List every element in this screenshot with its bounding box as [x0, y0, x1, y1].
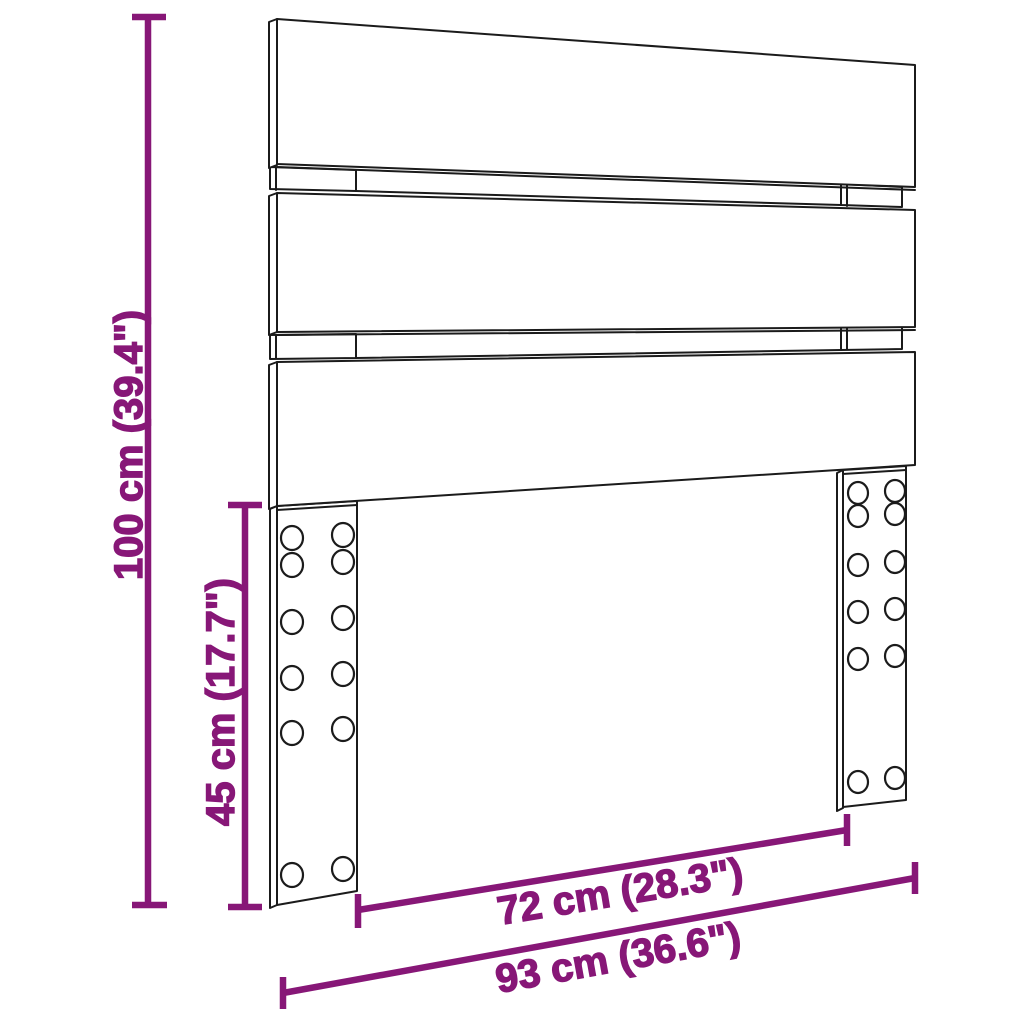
plank-bottom-front-face: [277, 352, 915, 506]
left-leg: [270, 501, 357, 908]
dimension-label-total-height: 100 cm (39.4"): [107, 310, 151, 580]
dimension-label-leg-height: 45 cm (17.7"): [199, 578, 243, 826]
screw-hole: [848, 505, 868, 527]
screw-hole: [281, 553, 303, 577]
plank-middle-side-face: [269, 193, 277, 335]
plank-top-side-face: [269, 19, 277, 168]
screw-hole: [332, 550, 354, 574]
headboard-dimension-diagram: 100 cm (39.4") 45 cm (17.7") 72 cm (28.3…: [0, 0, 1024, 1024]
screw-hole: [885, 767, 905, 789]
screw-hole: [332, 857, 354, 881]
screw-hole: [885, 598, 905, 620]
plank-middle-front-face: [277, 193, 915, 332]
screw-hole: [848, 601, 868, 623]
left-leg-side-face: [270, 506, 277, 908]
screw-hole: [848, 482, 868, 504]
plank-bottom: [269, 352, 915, 509]
screw-hole: [885, 503, 905, 525]
screw-hole: [885, 645, 905, 667]
screw-hole: [332, 717, 354, 741]
screw-hole: [848, 554, 868, 576]
dimension-total-height: 100 cm (39.4"): [107, 17, 167, 905]
screw-hole: [332, 606, 354, 630]
screw-hole: [332, 523, 354, 547]
dimension-inner-width: 72 cm (28.3"): [358, 814, 847, 934]
screw-hole: [885, 551, 905, 573]
screw-hole: [885, 480, 905, 502]
screw-hole: [332, 662, 354, 686]
screw-hole: [281, 526, 303, 550]
plank-bottom-side-face: [269, 362, 277, 509]
plank-top: [269, 19, 915, 190]
screw-hole: [848, 648, 868, 670]
batten-segment: [270, 334, 356, 359]
headboard-drawing: [269, 19, 915, 908]
screw-hole: [281, 721, 303, 745]
screw-hole: [848, 771, 868, 793]
batten-segment: [270, 167, 356, 191]
screw-hole: [281, 863, 303, 887]
diagram-canvas: 100 cm (39.4") 45 cm (17.7") 72 cm (28.3…: [0, 0, 1024, 1024]
screw-hole: [281, 610, 303, 634]
right-leg: [837, 466, 906, 811]
plank-middle: [269, 193, 915, 335]
dimension-leg-height: 45 cm (17.7"): [199, 505, 262, 907]
screw-hole: [281, 666, 303, 690]
plank-top-front-face: [277, 19, 915, 187]
